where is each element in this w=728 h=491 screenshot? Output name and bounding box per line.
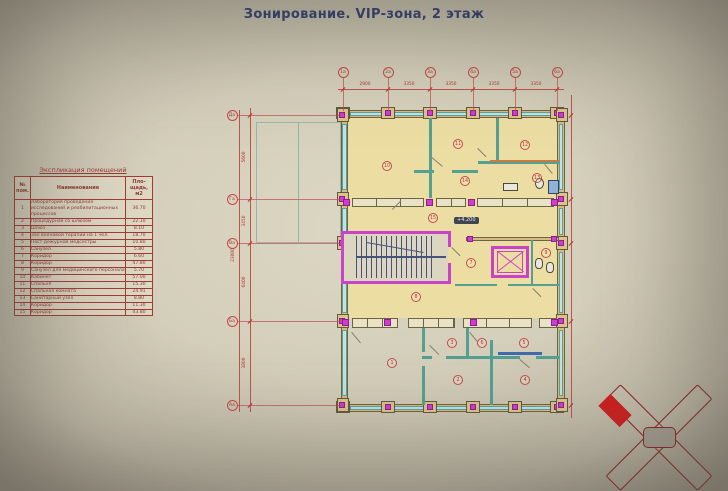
explication-cell-num: 12 [15, 288, 31, 295]
partition-accent [490, 160, 559, 163]
axis-bubble-top: 3а [425, 67, 436, 78]
room-number-1: 1 [387, 358, 397, 368]
axis-bubble-left: Да [227, 110, 238, 121]
explication-cell-num: 6 [15, 246, 31, 253]
column-marker [558, 402, 564, 408]
explication-cell-name: Лаборатория проведения исследований и ре… [30, 200, 125, 219]
explication-cell-name: Спальная комната [30, 288, 125, 295]
fixture-toilet [546, 262, 554, 273]
axis-leader [343, 78, 344, 111]
explication-cell-name: Санитарный узел [30, 295, 125, 302]
explication-cell-num: 7 [15, 253, 31, 260]
explication-cell-num: 15 [15, 309, 31, 316]
axis-bubble-left: Га [227, 194, 238, 205]
dimension-label-top: 3350 [394, 82, 424, 88]
column-marker [427, 404, 433, 410]
window [342, 124, 347, 190]
explication-cell-area: 24.91 [126, 288, 153, 295]
partition-wall [466, 237, 559, 241]
explication-caption: Экспликация помещений [18, 166, 148, 174]
partition [531, 240, 533, 285]
explication-cell-num: 13 [15, 295, 31, 302]
partition [536, 356, 559, 359]
stair-flight-lower [356, 258, 432, 278]
window [559, 330, 564, 396]
explication-cell-name: Коридор [30, 309, 125, 316]
dimension-line-right [571, 95, 572, 418]
partition [422, 328, 425, 352]
explication-row: 13Санитарный узел8.80 [15, 295, 153, 302]
column-marker [467, 236, 473, 242]
column-marker [551, 319, 558, 326]
explication-cell-area: 11.30 [126, 302, 153, 309]
explication-row: 15Коридор43.80 [15, 309, 153, 316]
explication-cell-name: Пост дежурной медсестры [30, 239, 125, 246]
dimension-label-top: 2900 [350, 82, 380, 88]
dimension-label-left: 3450 [242, 206, 250, 236]
explication-row: 14Коридор11.30 [15, 302, 153, 309]
explication-cell-name: Санузел для медицинского персонала [30, 267, 125, 274]
explication-row: 7Коридор6.60 [15, 253, 153, 260]
explication-row: 10Кабинет57.00 [15, 274, 153, 281]
explication-row: 12Спальная комната24.91 [15, 288, 153, 295]
window [350, 406, 382, 411]
fixture-bench [503, 183, 518, 191]
explication-cell-num: 10 [15, 274, 31, 281]
explication-cell-name: Зал волновой терапии на 1 чел. [30, 232, 125, 239]
window [559, 252, 564, 313]
door-swing [429, 345, 439, 355]
stair-wall [448, 231, 451, 247]
room-number-7: 7 [466, 258, 476, 268]
window [478, 406, 509, 411]
explication-cell-name: Санузел [30, 246, 125, 253]
room-number-2: 2 [453, 375, 463, 385]
stair-wall [448, 263, 451, 284]
room-number-13: 13 [532, 173, 542, 183]
room-number-4: 4 [520, 375, 530, 385]
explication-cell-name: Коридор [30, 302, 125, 309]
window [559, 124, 564, 190]
explication-cell-area: 10.80 [126, 239, 153, 246]
explication-row: 4Зал волновой терапии на 1 чел.18.70 [15, 232, 153, 239]
room-number-15: 15 [428, 213, 438, 223]
column-marker [551, 199, 558, 206]
dimension-label-left: 3800 [242, 348, 250, 378]
column-marker [512, 404, 518, 410]
column-marker [551, 236, 557, 242]
explication-cell-area: 15.30 [126, 281, 153, 288]
key-plan-core [643, 427, 676, 448]
partition [496, 118, 499, 162]
explication-cell-area: 57.00 [126, 274, 153, 281]
explication-cell-num: 11 [15, 281, 31, 288]
window [342, 330, 347, 396]
explication-cell-area: 5.80 [126, 246, 153, 253]
explication-row: 6Санузел5.80 [15, 246, 153, 253]
window [521, 112, 551, 117]
axis-leader [430, 78, 431, 111]
axis-leader [238, 405, 341, 406]
partition [490, 356, 520, 359]
column-marker [343, 199, 350, 206]
door-swing [519, 359, 530, 368]
explication-row: 2Процедурная со шлюзом22.10 [15, 218, 153, 225]
axis-leader [238, 199, 341, 200]
dimension-label-left: 6400 [242, 267, 250, 297]
window [393, 406, 424, 411]
stair-landing-line [356, 256, 446, 258]
axis-bubble-top: 4а [468, 67, 479, 78]
dimension-label-left: 5600 [242, 142, 250, 172]
col-header-area: Пло-щадь, м2 [126, 177, 153, 200]
room-number-3: 3 [447, 338, 457, 348]
col-header-name: Наименование [30, 177, 125, 200]
explication-cell-num: 1 [15, 200, 31, 219]
column-marker [342, 319, 349, 326]
stair-wall [341, 231, 451, 234]
dimension-line-left-outer [239, 110, 240, 412]
explication-cell-area: 6.60 [126, 253, 153, 260]
column-marker [558, 318, 564, 324]
axis-bubble-top: 1а [338, 67, 349, 78]
adjacent-wing-centerline [298, 123, 299, 242]
dimension-label-total: 23000 [231, 240, 239, 270]
explication-table: № пом. Наименование Пло-щадь, м2 1Лабора… [14, 176, 153, 316]
interior-window-band [436, 198, 466, 207]
fixture-toilet [535, 258, 543, 269]
partition [422, 356, 432, 359]
explication-cell-area: 43.80 [126, 309, 153, 316]
explication-row: 8Коридор47.80 [15, 260, 153, 267]
explication-header-row: № пом. Наименование Пло-щадь, м2 [15, 177, 153, 200]
explication-row: 3Шлюз8.10 [15, 225, 153, 232]
explication-cell-num: 5 [15, 239, 31, 246]
partition [490, 340, 493, 405]
explication-cell-num: 14 [15, 302, 31, 309]
dimension-label-top: 3350 [436, 82, 466, 88]
window [478, 112, 509, 117]
partition [422, 366, 425, 405]
column-marker [426, 199, 433, 206]
axis-leader [238, 115, 341, 116]
interior-window-band [408, 318, 455, 328]
window [521, 406, 551, 411]
column-marker [470, 404, 476, 410]
explication-row: 9Санузел для медицинского персонала5.70 [15, 267, 153, 274]
drawing-sheet: Зонирование. VIP-зона, 2 этаж Экспликаци… [0, 0, 728, 491]
interior-window-band [477, 198, 554, 207]
page-title: Зонирование. VIP-зона, 2 этаж [0, 7, 728, 22]
axis-leader [238, 243, 341, 244]
axis-bubble-top: 2а [383, 67, 394, 78]
explication-cell-num: 4 [15, 232, 31, 239]
explication-cell-name: Процедурная со шлюзом [30, 218, 125, 225]
dimension-line-left-inner [250, 108, 251, 412]
axis-bubble-left: Аа [227, 400, 238, 411]
interior-window-band [352, 198, 424, 207]
axis-bubble-left: Ба [227, 316, 238, 327]
explication-row: 5Пост дежурной медсестры10.80 [15, 239, 153, 246]
partition [452, 170, 478, 173]
stair-wall [341, 231, 344, 284]
explication-cell-area: 18.70 [126, 232, 153, 239]
explication-cell-name: Коридор [30, 253, 125, 260]
explication-row: 1Лаборатория проведения исследований и р… [15, 200, 153, 219]
axis-bubble-top: 6а [552, 67, 563, 78]
column-marker [384, 319, 391, 326]
room-number-8: 8 [411, 292, 421, 302]
explication-cell-num: 3 [15, 225, 31, 232]
axis-leader [557, 78, 558, 111]
room-number-11: 11 [453, 139, 463, 149]
explication-cell-area: 22.10 [126, 218, 153, 225]
window [393, 112, 424, 117]
explication-cell-area: 8.10 [126, 225, 153, 232]
fixture-appliance [548, 180, 559, 194]
column-marker [468, 199, 475, 206]
door-swing [351, 332, 361, 343]
explication-cell-name: Спальня [30, 281, 125, 288]
column-marker [558, 112, 564, 118]
col-header-num: № пом. [15, 177, 31, 200]
partition [414, 170, 434, 173]
explication-cell-area: 47.80 [126, 260, 153, 267]
room-number-9: 9 [541, 248, 551, 258]
window [350, 112, 382, 117]
dimension-label-top: 3350 [479, 82, 509, 88]
elevation-badge: +4.200 [454, 217, 479, 224]
column-marker [558, 240, 564, 246]
column-marker [558, 196, 564, 202]
explication-cell-name: Коридор [30, 260, 125, 267]
window [559, 208, 564, 235]
axis-bubble-top: 5а [510, 67, 521, 78]
room-number-10: 10 [382, 161, 392, 171]
explication-cell-area: 36.70 [126, 200, 153, 219]
interior-window-band [352, 318, 398, 328]
axis-leader [388, 78, 389, 111]
axis-leader [473, 78, 474, 111]
partition [455, 284, 497, 286]
axis-leader [238, 321, 341, 322]
room-number-5: 5 [519, 338, 529, 348]
column-marker [470, 319, 477, 326]
window [436, 406, 467, 411]
room-number-14: 14 [460, 176, 470, 186]
explication-cell-area: 5.70 [126, 267, 153, 274]
explication-cell-name: Шлюз [30, 225, 125, 232]
axis-leader [515, 78, 516, 111]
explication-cell-name: Кабинет [30, 274, 125, 281]
explication-cell-num: 9 [15, 267, 31, 274]
stair-wall [341, 281, 451, 284]
partition [508, 284, 559, 286]
dimension-label-top: 3350 [521, 82, 551, 88]
room-number-12: 12 [520, 140, 530, 150]
explication-cell-area: 8.80 [126, 295, 153, 302]
explication-row: 11Спальня15.30 [15, 281, 153, 288]
window [436, 112, 467, 117]
partition-blue [498, 352, 542, 355]
partition [446, 356, 490, 359]
room-number-6: 6 [477, 338, 487, 348]
explication-cell-num: 8 [15, 260, 31, 267]
explication-cell-num: 2 [15, 218, 31, 225]
dimension-line-top [338, 89, 564, 90]
column-marker [385, 404, 391, 410]
